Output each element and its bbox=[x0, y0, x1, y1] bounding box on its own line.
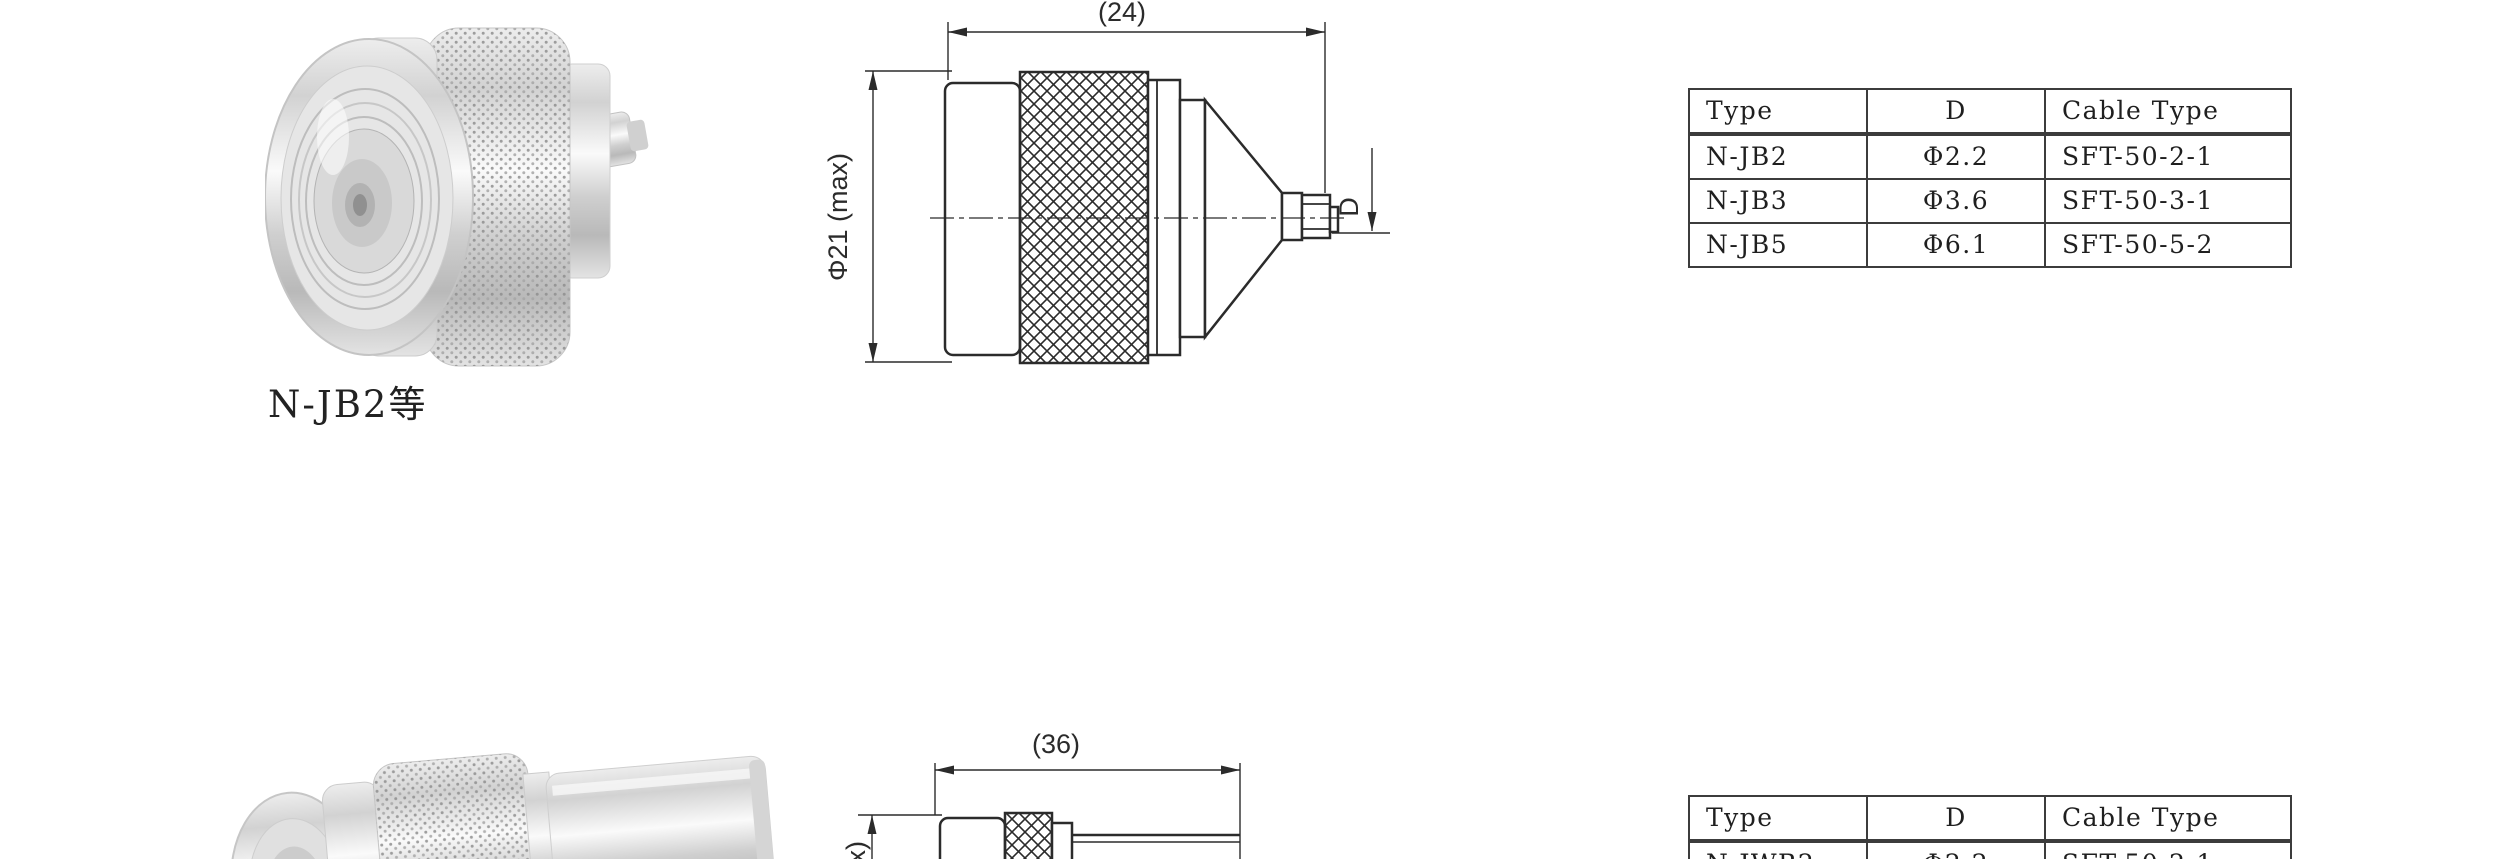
table-cell: SFT-50-5-2 bbox=[2045, 223, 2291, 267]
spec-table-bottom: Type D Cable Type N-JWB2 Φ2.2 SFT-50-2-1 bbox=[1688, 795, 2292, 859]
table-cell: SFT-50-2-1 bbox=[2045, 134, 2291, 179]
table-header-cell: D bbox=[1867, 89, 2045, 134]
photo-caption: N-JB2等 bbox=[268, 374, 427, 428]
table-cell: SFT-50-3-1 bbox=[2045, 179, 2291, 223]
table-cell: N-JWB2 bbox=[1689, 841, 1867, 859]
table-cell: N-JB3 bbox=[1689, 179, 1867, 223]
cable-dim-label: D bbox=[1334, 197, 1364, 217]
table-row: N-JB5 Φ6.1 SFT-50-5-2 bbox=[1689, 223, 2291, 267]
table-cell: Φ2.2 bbox=[1867, 841, 2045, 859]
connector-photo-bottom bbox=[225, 742, 785, 859]
connector-body-outline bbox=[940, 813, 1240, 859]
dim-arrow-left bbox=[935, 766, 954, 775]
technical-drawing-bottom: (36) Φ21 (max) bbox=[830, 715, 1390, 859]
diameter-dim-label: Φ21 (max) bbox=[823, 153, 853, 281]
dim-arrow-d bbox=[1368, 212, 1377, 231]
table-header-cell: D bbox=[1867, 796, 2045, 841]
datasheet-page: N-JB2等 (24) Φ21 (max) bbox=[0, 0, 2515, 859]
table-row: N-JB2 Φ2.2 SFT-50-2-1 bbox=[1689, 134, 2291, 179]
table-row: N-JB3 Φ3.6 SFT-50-3-1 bbox=[1689, 179, 2291, 223]
table-header-row: Type D Cable Type bbox=[1689, 796, 2291, 841]
length-dim-label: (36) bbox=[1032, 729, 1080, 759]
spec-table-top: Type D Cable Type N-JB2 Φ2.2 SFT-50-2-1 … bbox=[1688, 88, 2292, 268]
connector-photo-bottom-art bbox=[225, 742, 779, 859]
table-cell: Φ2.2 bbox=[1867, 134, 2045, 179]
dim-arrow-down bbox=[869, 343, 878, 362]
table-header-cell: Cable Type bbox=[2045, 796, 2291, 841]
dim-arrow-right bbox=[1306, 28, 1325, 37]
table-header-cell: Type bbox=[1689, 89, 1867, 134]
table-row: N-JWB2 Φ2.2 SFT-50-2-1 bbox=[1689, 841, 2291, 859]
dim-arrow-up bbox=[868, 815, 877, 834]
table-cell: Φ3.6 bbox=[1867, 179, 2045, 223]
connector-photo-top-art bbox=[265, 28, 650, 366]
table-cell: Φ6.1 bbox=[1867, 223, 2045, 267]
technical-drawing-top: (24) Φ21 (max) bbox=[800, 0, 1400, 420]
dim-arrow-left bbox=[948, 28, 967, 37]
connector-photo-top bbox=[265, 22, 650, 372]
table-cell: N-JB2 bbox=[1689, 134, 1867, 179]
cable-dimension bbox=[1332, 148, 1390, 233]
table-header-row: Type D Cable Type bbox=[1689, 89, 2291, 134]
dim-arrow-up bbox=[869, 71, 878, 90]
length-dim-label: (24) bbox=[1098, 0, 1146, 27]
table-cell: N-JB5 bbox=[1689, 223, 1867, 267]
diameter-dimension bbox=[865, 71, 952, 362]
table-header-cell: Type bbox=[1689, 796, 1867, 841]
diameter-dim-label: Φ21 (max) bbox=[841, 841, 871, 859]
table-cell: SFT-50-2-1 bbox=[2045, 841, 2291, 859]
dim-arrow-right bbox=[1221, 766, 1240, 775]
table-header-cell: Cable Type bbox=[2045, 89, 2291, 134]
